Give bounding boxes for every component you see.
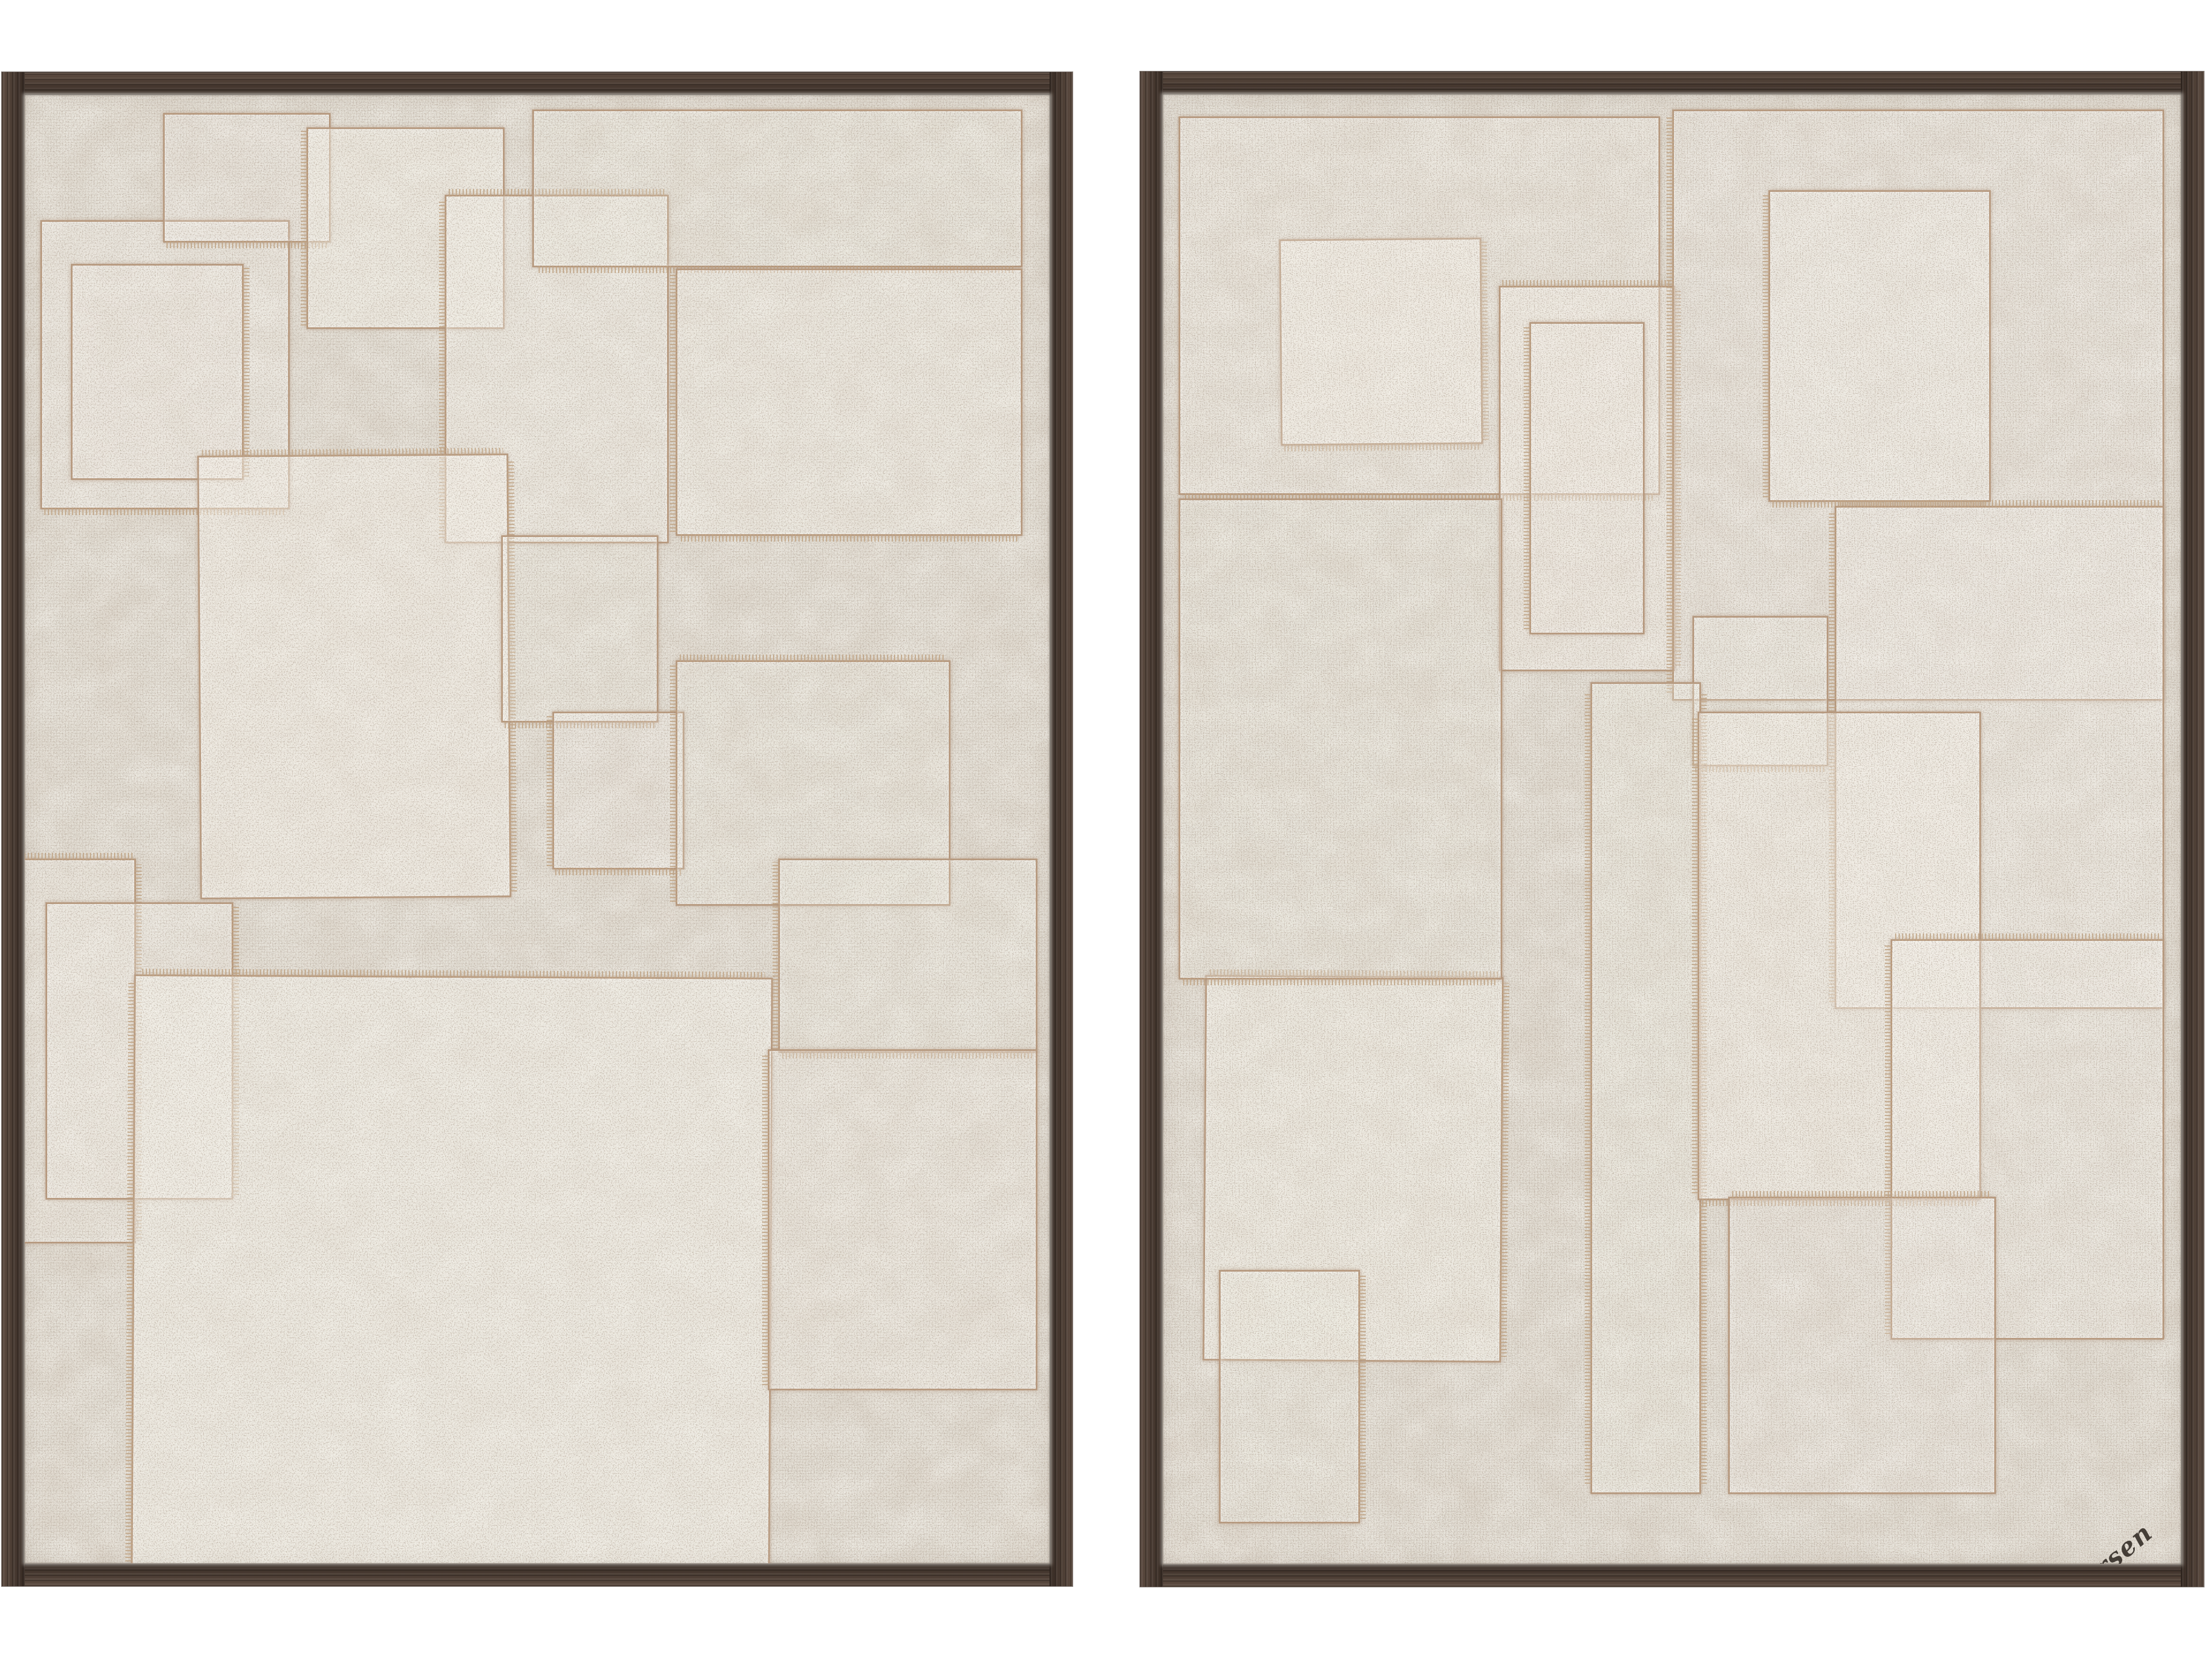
patch-fringe-top: [680, 655, 946, 662]
artwork-panel-left: [2, 72, 1073, 1586]
fabric-patch: [1179, 498, 1503, 980]
patch-fringe-left: [1585, 692, 1592, 1484]
fabric-patch: [163, 113, 331, 243]
fabric-patch: [198, 453, 512, 899]
frame-bar-bottom: [1140, 1564, 2204, 1587]
fabric-patch: [768, 1049, 1038, 1390]
fabric-patch: [1728, 1197, 1996, 1494]
frame-bar-top: [1140, 71, 2204, 95]
fabric-patch: [1529, 322, 1645, 634]
fabric-patch: [552, 712, 684, 869]
right-canvas: Petersen: [1163, 94, 2181, 1564]
frame-bar-right: [2181, 71, 2204, 1587]
patch-fringe-left: [547, 715, 554, 866]
fabric-patch: [131, 974, 772, 1563]
artwork-panel-right: Petersen: [1140, 71, 2204, 1587]
frame-bar-bottom: [2, 1563, 1073, 1586]
fabric-patch: [501, 535, 658, 723]
frame-bar-left: [1140, 71, 1163, 1587]
fabric-patch: [532, 109, 1022, 267]
left-canvas: [25, 95, 1050, 1563]
fabric-patch: [676, 269, 1022, 536]
patch-fringe-top: [25, 853, 133, 860]
fabric-patch: [1768, 190, 1991, 502]
frame-bar-top: [2, 72, 1073, 96]
fabric-patch: [1219, 1270, 1360, 1523]
artist-signature: Petersen: [2037, 1518, 2159, 1564]
fabric-patch: [71, 264, 244, 480]
patch-fringe-right: [1499, 982, 1510, 1357]
patch-fringe-bottom: [681, 534, 1017, 542]
patch-fringe-top: [142, 969, 765, 980]
fabric-patch: [1590, 682, 1701, 1494]
artwork-pair: Petersen: [0, 0, 2212, 1660]
frame-bar-right: [1050, 72, 1073, 1586]
frame-bar-left: [2, 72, 25, 1586]
patch-fringe-left: [670, 273, 677, 531]
fabric-patch: [778, 859, 1038, 1053]
patch-fringe-bottom: [555, 868, 681, 875]
